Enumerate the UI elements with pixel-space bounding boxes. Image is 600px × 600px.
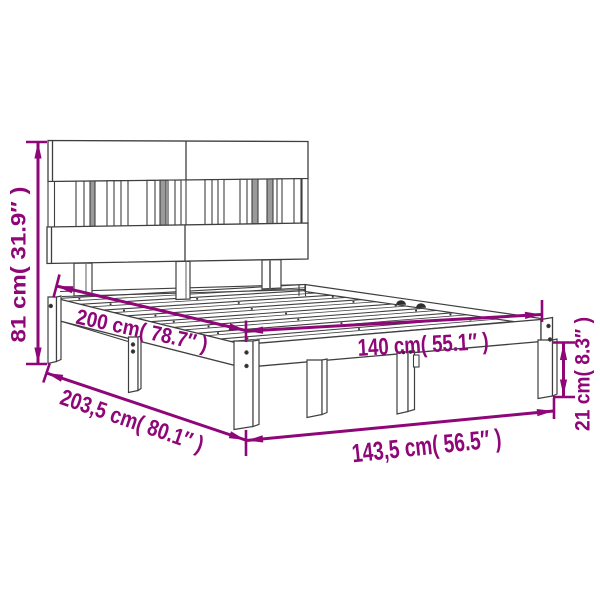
svg-text:21 cm( 8.3″ ): 21 cm( 8.3″ ) [571,317,595,431]
svg-text:140 cm( 55.1″ ): 140 cm( 55.1″ ) [357,328,489,362]
svg-text:81 cm( 31.9″ ): 81 cm( 31.9″ ) [7,187,31,343]
